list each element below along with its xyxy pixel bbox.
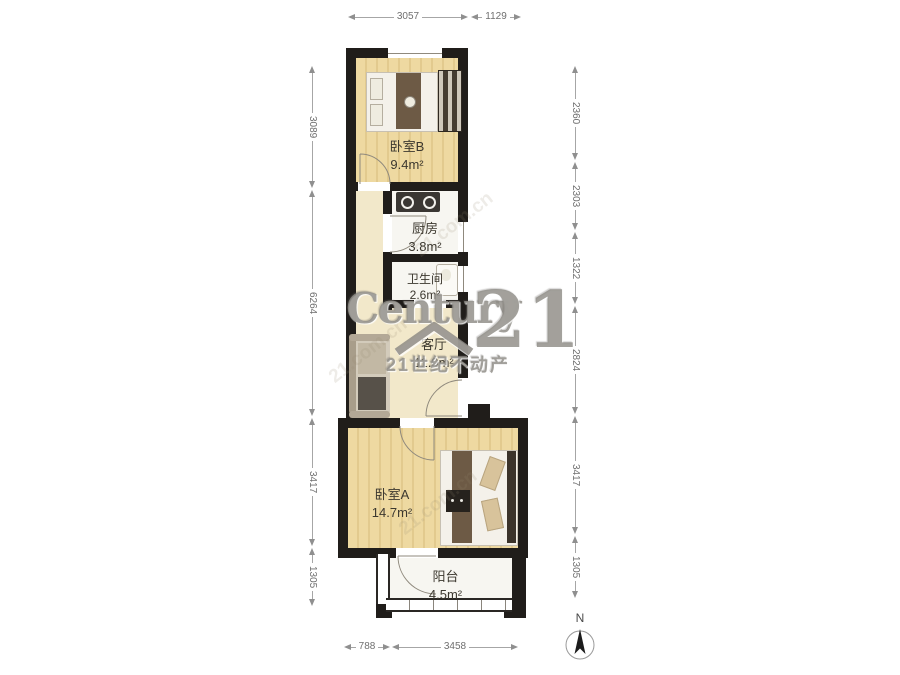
door-opening xyxy=(400,418,434,428)
pillow-icon xyxy=(479,456,506,491)
dimension-left-3: 3417 xyxy=(305,418,319,546)
window xyxy=(388,48,442,58)
bed-icon xyxy=(440,450,518,546)
dimension-value: 1305 xyxy=(570,553,580,581)
dimension-right-1: 2360 xyxy=(568,66,582,160)
dimension-right-2: 2303 xyxy=(568,162,582,230)
room-area: 3.8m² xyxy=(392,238,458,256)
dimension-right-5: 3417 xyxy=(568,416,582,534)
bed-tray-icon xyxy=(446,490,470,512)
room-label-bathroom: 卫生间 2.6m² xyxy=(390,271,460,303)
door-opening xyxy=(358,182,390,191)
room-label-bedroom-b: 卧室B 9.4m² xyxy=(357,138,457,173)
sofa-armrest xyxy=(349,334,390,341)
sofa-armrest xyxy=(349,411,390,418)
bed-icon xyxy=(366,72,438,132)
room-name: 卧室A xyxy=(352,486,432,504)
bed-logo-icon xyxy=(404,96,416,108)
room-name: 厨房 xyxy=(392,220,458,238)
room-label-bedroom-a: 卧室A 14.7m² xyxy=(352,486,432,521)
stove-icon xyxy=(396,192,440,212)
room-name: 卫生间 xyxy=(390,271,460,287)
dimension-value: 3417 xyxy=(570,461,580,489)
dimension-value: 1305 xyxy=(307,563,317,591)
wall xyxy=(383,254,468,262)
burner-icon xyxy=(401,196,414,209)
sofa-icon xyxy=(349,334,391,418)
door-opening xyxy=(396,548,438,558)
dimension-value: 3057 xyxy=(394,12,422,22)
dimension-bottom-1: 788 xyxy=(344,642,390,652)
room-name: 阳台 xyxy=(408,568,483,586)
pillow-icon xyxy=(370,78,383,100)
floor-plan-canvas: 卧室B 9.4m² 厨房 3.8m² 卫生间 2.6m² 客厅 11.9m² 卧… xyxy=(0,0,900,675)
dimension-top-2: 1129 xyxy=(471,12,521,22)
wall xyxy=(338,418,348,558)
room-label-kitchen: 厨房 3.8m² xyxy=(392,220,458,255)
compass-north-label: N xyxy=(558,612,602,624)
dimension-left-4: 1305 xyxy=(305,548,319,606)
dimension-value: 2824 xyxy=(570,346,580,374)
room-label-living-room: 客厅 11.9m² xyxy=(398,336,470,371)
sofa-cushion xyxy=(358,377,386,410)
compass-needle-icon xyxy=(561,625,599,663)
pillow-icon xyxy=(370,104,383,126)
dimension-right-3: 1322 xyxy=(568,232,582,304)
dimension-value: 788 xyxy=(356,642,379,652)
door-opening xyxy=(383,214,392,252)
room-area: 11.9m² xyxy=(398,354,470,372)
dimension-bottom-2: 3458 xyxy=(392,642,518,652)
dimension-value: 3458 xyxy=(441,642,469,652)
entrance-door-opening xyxy=(458,378,468,418)
dimension-value: 1322 xyxy=(570,254,580,282)
pillow-icon xyxy=(481,498,504,532)
watermark-brand-number: 21 xyxy=(472,282,581,360)
dimension-value: 3089 xyxy=(307,113,317,141)
room-name: 卧室B xyxy=(357,138,457,156)
dimension-value: 3417 xyxy=(307,468,317,496)
dimension-left-1: 3089 xyxy=(305,66,319,188)
dimension-top-1: 3057 xyxy=(348,12,468,22)
burner-icon xyxy=(423,196,436,209)
room-area: 4.5m² xyxy=(408,586,483,604)
room-area: 2.6m² xyxy=(390,287,460,303)
dimension-value: 2360 xyxy=(570,99,580,127)
window xyxy=(458,222,468,252)
dimension-value: 6264 xyxy=(307,289,317,317)
dimension-value: 1129 xyxy=(482,12,510,22)
wardrobe-icon xyxy=(438,70,462,132)
compass: N xyxy=(558,612,602,663)
headboard-icon xyxy=(507,451,516,543)
sofa-cushion xyxy=(358,343,386,374)
room-label-balcony: 阳台 4.5m² xyxy=(408,568,483,603)
dimension-value: 2303 xyxy=(570,182,580,210)
dimension-left-2: 6264 xyxy=(305,190,319,416)
balcony-window xyxy=(376,554,390,604)
wall xyxy=(518,418,528,558)
room-name: 客厅 xyxy=(398,336,470,354)
dimension-right-4: 2824 xyxy=(568,306,582,414)
room-area: 9.4m² xyxy=(357,156,457,174)
dimension-right-6: 1305 xyxy=(568,536,582,598)
room-area: 14.7m² xyxy=(352,504,432,522)
